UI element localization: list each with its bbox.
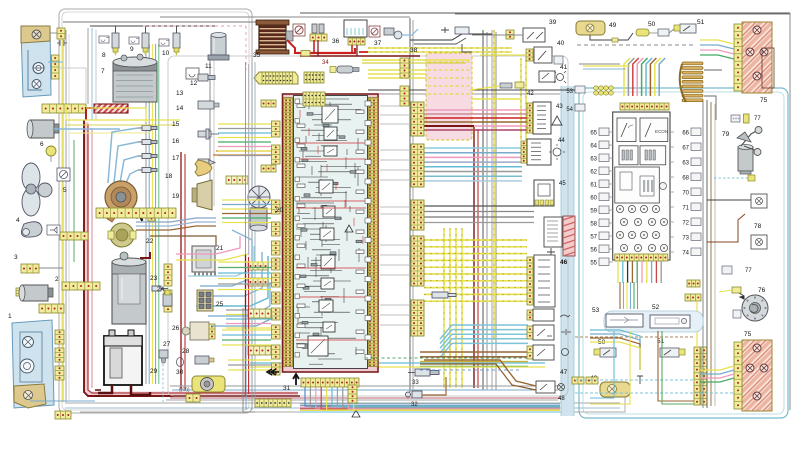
svg-text:16: 16 xyxy=(172,138,180,145)
svg-text:43: 43 xyxy=(556,104,563,110)
svg-text:44: 44 xyxy=(558,138,565,144)
svg-text:58: 58 xyxy=(590,222,597,228)
svg-text:71: 71 xyxy=(682,206,689,212)
svg-text:9: 9 xyxy=(130,46,134,53)
svg-text:76: 76 xyxy=(758,287,766,294)
svg-text:55: 55 xyxy=(590,261,597,267)
svg-text:64: 64 xyxy=(590,144,597,150)
svg-text:1: 1 xyxy=(8,313,12,320)
svg-text:20: 20 xyxy=(276,207,284,214)
svg-text:70: 70 xyxy=(682,191,689,197)
svg-text:17: 17 xyxy=(172,155,180,162)
svg-text:67: 67 xyxy=(682,146,689,152)
svg-text:13: 13 xyxy=(176,90,184,97)
svg-text:18: 18 xyxy=(165,173,173,180)
svg-text:53: 53 xyxy=(592,307,600,314)
svg-text:65: 65 xyxy=(590,131,597,137)
svg-text:46: 46 xyxy=(560,259,568,266)
svg-text:36: 36 xyxy=(332,38,340,45)
svg-text:15: 15 xyxy=(172,121,180,128)
svg-text:10: 10 xyxy=(162,50,170,57)
svg-text:75: 75 xyxy=(760,97,768,104)
svg-text:11: 11 xyxy=(205,63,212,70)
svg-text:29: 29 xyxy=(150,368,158,375)
svg-text:51: 51 xyxy=(697,19,705,26)
svg-text:((O)): ((O)) xyxy=(179,387,190,393)
svg-text:78: 78 xyxy=(754,223,762,230)
svg-text:63: 63 xyxy=(590,157,597,163)
svg-text:26: 26 xyxy=(172,325,180,332)
svg-text:6: 6 xyxy=(40,141,44,148)
svg-text:25: 25 xyxy=(216,301,224,308)
svg-text:52: 52 xyxy=(652,304,660,311)
svg-text:50: 50 xyxy=(648,21,656,28)
svg-text:45: 45 xyxy=(559,181,566,187)
svg-text:60: 60 xyxy=(590,196,597,202)
svg-text:47: 47 xyxy=(560,369,568,376)
svg-text:61: 61 xyxy=(590,183,597,189)
svg-text:2: 2 xyxy=(55,276,59,283)
svg-text:77: 77 xyxy=(754,116,761,122)
svg-text:39: 39 xyxy=(549,19,557,26)
svg-text:68: 68 xyxy=(682,176,689,182)
svg-text:35: 35 xyxy=(253,52,261,59)
svg-text:19: 19 xyxy=(172,193,180,200)
svg-text:22: 22 xyxy=(146,238,154,245)
svg-text:14: 14 xyxy=(176,105,184,112)
svg-text:7: 7 xyxy=(101,68,105,75)
svg-text:3: 3 xyxy=(14,254,18,261)
svg-text:74: 74 xyxy=(682,251,689,257)
svg-text:4: 4 xyxy=(16,217,20,224)
svg-text:27: 27 xyxy=(163,341,171,348)
svg-text:56: 56 xyxy=(590,248,597,254)
svg-text:40: 40 xyxy=(557,40,565,47)
svg-text:28: 28 xyxy=(182,348,190,355)
svg-text:63: 63 xyxy=(682,161,689,167)
svg-text:30: 30 xyxy=(176,369,184,376)
svg-text:62: 62 xyxy=(590,170,597,176)
svg-text:72: 72 xyxy=(682,221,689,227)
svg-text:73: 73 xyxy=(682,236,689,242)
svg-text:23: 23 xyxy=(150,275,158,282)
svg-text:77: 77 xyxy=(745,268,752,274)
svg-text:79: 79 xyxy=(722,131,730,138)
svg-text:ECON: ECON xyxy=(655,129,668,134)
svg-text:5: 5 xyxy=(63,187,67,194)
svg-text:75: 75 xyxy=(744,331,752,338)
svg-text:41: 41 xyxy=(560,64,568,71)
svg-text:34: 34 xyxy=(322,60,329,66)
svg-text:12: 12 xyxy=(190,80,198,87)
svg-text:38: 38 xyxy=(410,47,418,54)
svg-text:24: 24 xyxy=(157,286,165,293)
svg-text:33: 33 xyxy=(412,380,419,386)
svg-text:57: 57 xyxy=(590,235,597,241)
svg-text:59: 59 xyxy=(590,209,597,215)
svg-text:49: 49 xyxy=(609,22,617,29)
svg-text:31: 31 xyxy=(283,385,291,392)
svg-text:21: 21 xyxy=(216,245,224,252)
svg-text:42: 42 xyxy=(527,91,534,97)
svg-text:66: 66 xyxy=(682,131,689,137)
svg-text:37: 37 xyxy=(374,40,382,47)
svg-text:54: 54 xyxy=(566,107,573,113)
svg-text:53: 53 xyxy=(566,89,573,95)
svg-text:32: 32 xyxy=(411,402,418,408)
svg-text:8: 8 xyxy=(102,52,106,59)
svg-text:48: 48 xyxy=(558,396,565,402)
